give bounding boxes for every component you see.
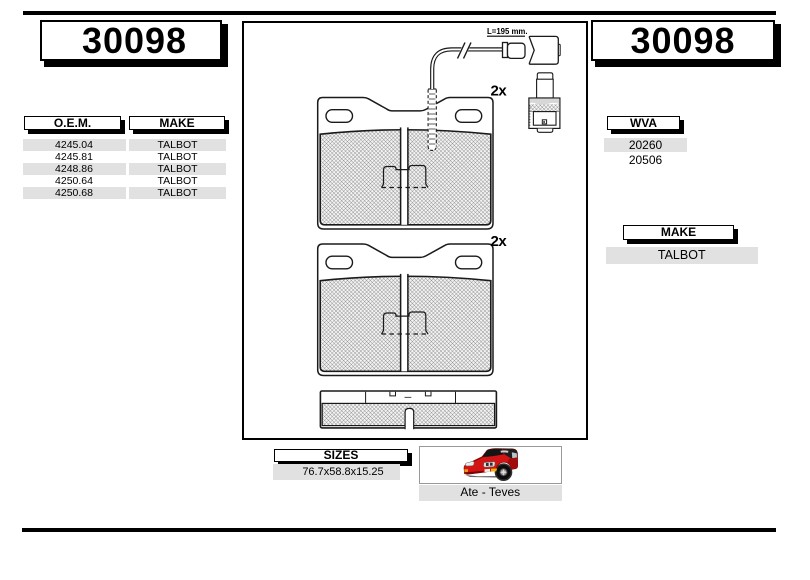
svg-text:2x: 2x [491,233,508,250]
svg-text:L=195 mm.: L=195 mm. [487,27,528,36]
svg-text:2x: 2x [491,83,508,100]
